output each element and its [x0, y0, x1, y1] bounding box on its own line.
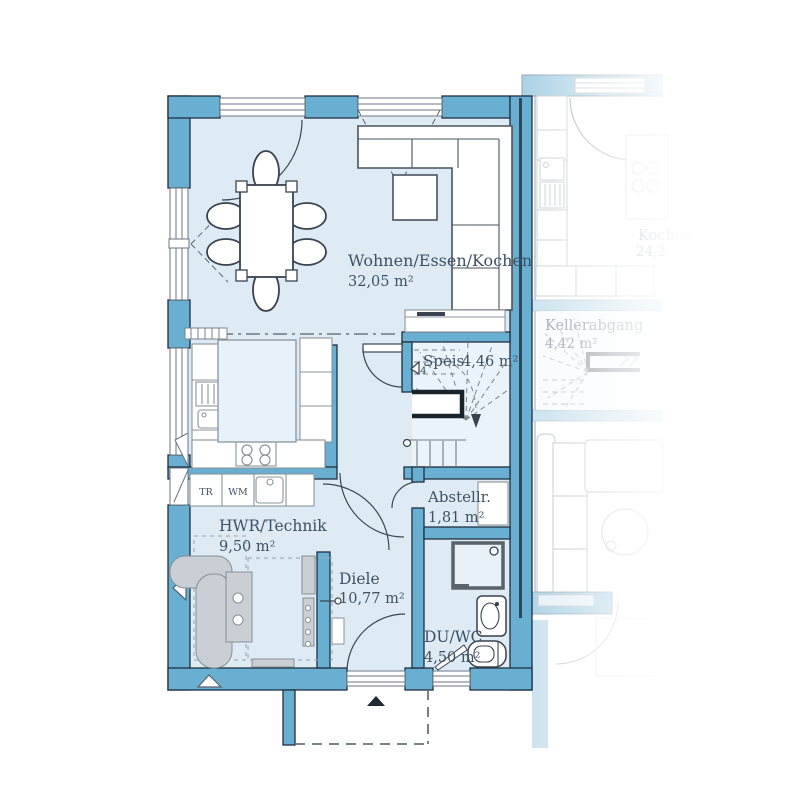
room-label-hwr: HWR/Technik — [219, 517, 327, 535]
floor-mat — [252, 659, 294, 667]
fade-overlay — [524, 0, 800, 800]
kitchen-tall-cabinets — [300, 338, 332, 442]
heating-unit — [226, 572, 252, 642]
room-area-hwr: 9,50 m² — [219, 539, 275, 555]
room-label-diele: Diele — [339, 570, 380, 588]
stair-newel — [404, 440, 411, 447]
shoe-cabinet — [332, 618, 344, 644]
room-label-wohnen: Wohnen/Essen/Kochen — [348, 251, 532, 270]
stair-spine — [412, 392, 462, 416]
room-area-abstellraum: 1,81 m² — [428, 510, 484, 526]
room-label-duwc: DU/WC — [424, 628, 483, 646]
manifold-box — [302, 556, 315, 594]
room-area-diele: 10,77 m² — [339, 591, 405, 607]
room-area-wohnen: 32,05 m² — [348, 274, 414, 290]
dryer-label: TR — [199, 487, 213, 498]
kitchen-island — [218, 340, 296, 442]
porch-outline — [295, 690, 428, 744]
speis-door-leaf — [363, 344, 402, 352]
floor-plan-svg: Kochen 24,2 Kellerabgang 4,42 m² — [0, 0, 800, 800]
shower-drain — [490, 547, 498, 555]
party-wall-core — [519, 98, 522, 618]
kitchen — [185, 328, 332, 468]
room-label-abstellraum: Abstellr. — [427, 488, 491, 506]
main-unit: 4 — [168, 96, 532, 745]
room-label-speis: Speis — [423, 352, 464, 370]
coffee-table — [393, 175, 437, 220]
entrance-marker — [367, 696, 385, 706]
washer-label: WM — [228, 487, 248, 498]
sideboard — [405, 310, 505, 332]
room-area-duwc: 4,50 m² — [424, 650, 480, 666]
floor-plan-page: Kochen 24,2 Kellerabgang 4,42 m² — [0, 0, 800, 800]
dining-table — [240, 185, 293, 277]
room-area-speis: 4,46 m² — [462, 354, 518, 370]
